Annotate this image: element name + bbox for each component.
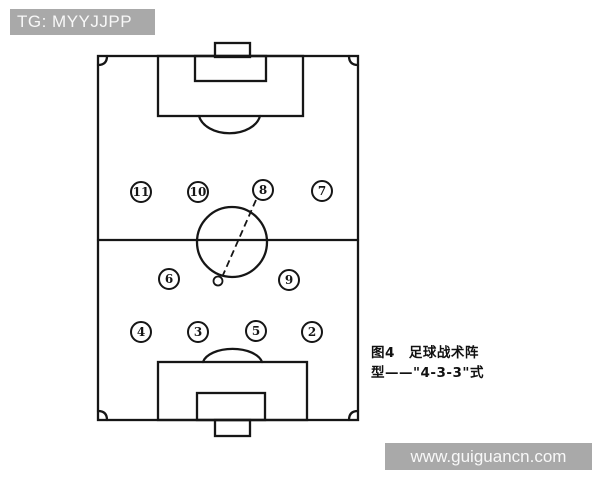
player-marker-9: 9 [278,269,300,291]
corner-arc-top-left [98,56,107,65]
figure-caption: 图4 足球战术阵 型——"4-3-3"式 [371,343,521,383]
player-marker-8: 8 [252,179,274,201]
top-goal-area [195,56,266,81]
pass-line [223,200,256,275]
watermark-bottom-text: www.guiguancn.com [411,447,567,467]
player-marker-3: 3 [187,321,209,343]
ball [214,277,223,286]
player-marker-6: 6 [158,268,180,290]
figure-caption-line2: 型——"4-3-3"式 [371,363,521,383]
player-marker-2: 2 [301,321,323,343]
football-pitch-diagram [0,0,600,480]
scanned-page: TG: MYYJJPP 111087694352 图4 足球战术阵 型——"4-… [0,0,600,480]
pitch-outline [98,56,358,420]
player-marker-4: 4 [130,321,152,343]
player-marker-10: 10 [187,181,209,203]
player-marker-7: 7 [311,180,333,202]
corner-arc-bottom-right [349,411,358,420]
top-penalty-arc [199,116,260,133]
bottom-goal [215,420,250,436]
bottom-penalty-arc [203,349,262,362]
figure-caption-line1: 图4 足球战术阵 [371,343,521,363]
player-marker-11: 11 [130,181,152,203]
bottom-penalty-area [158,362,307,420]
watermark-bottom: www.guiguancn.com [385,443,592,470]
top-penalty-area [158,56,303,116]
corner-arc-top-right [349,56,358,65]
corner-arc-bottom-left [98,411,107,420]
center-circle [197,207,267,277]
bottom-goal-area [197,393,265,420]
player-marker-5: 5 [245,320,267,342]
